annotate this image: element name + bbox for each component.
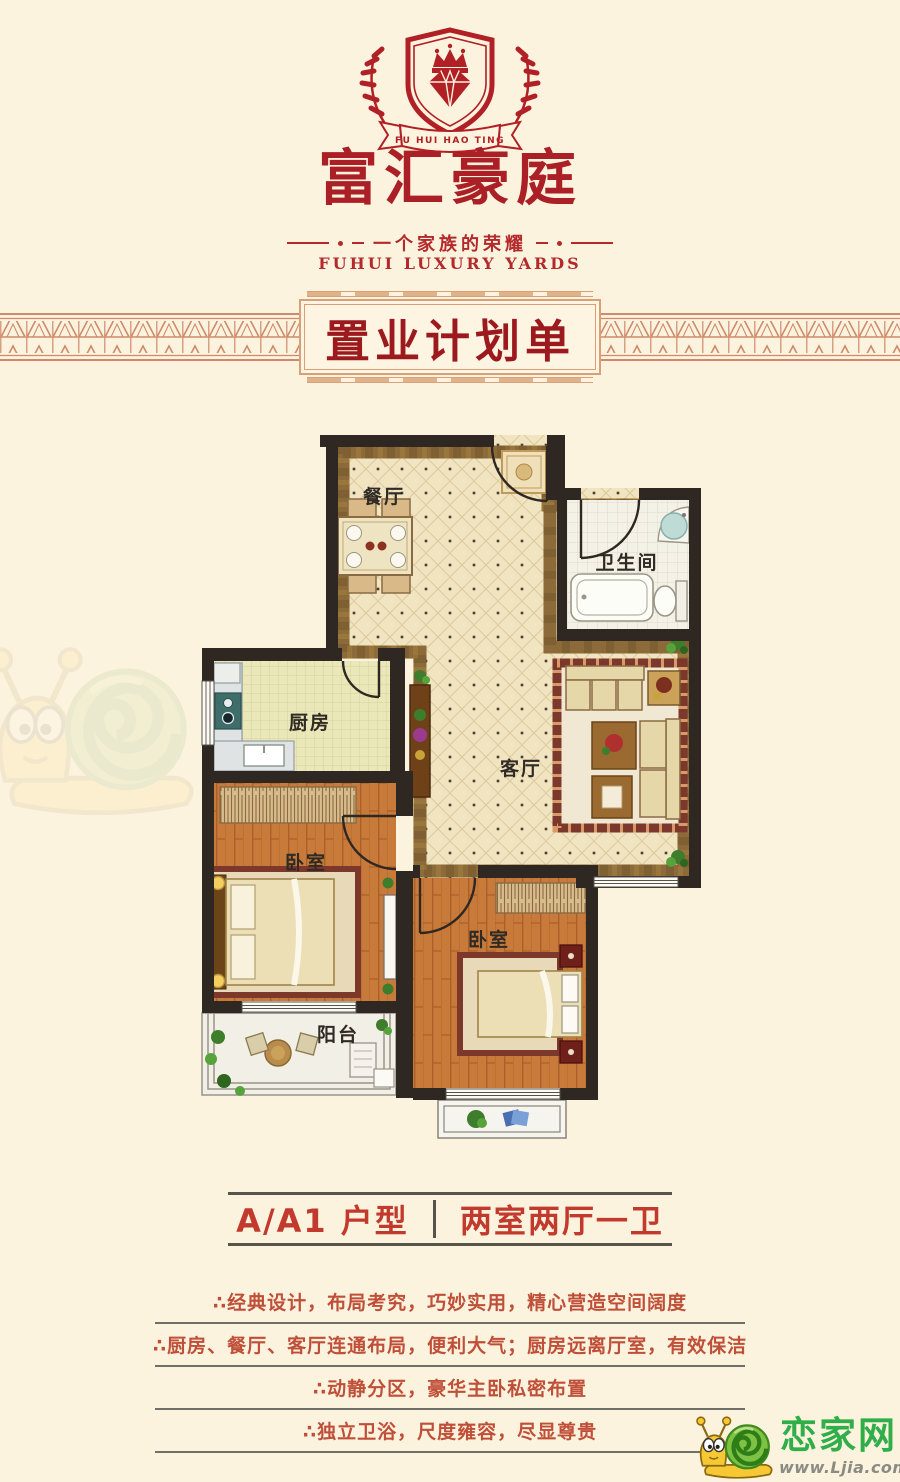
feature-item: ∴经典设计，布局考究，巧妙实用，精心营造空间阔度: [155, 1281, 745, 1322]
bay-window: [438, 1100, 566, 1138]
wardrobe-icon: [220, 787, 356, 823]
bed-second-icon: [478, 971, 582, 1037]
room-label-bedroom-main: 卧室: [285, 851, 327, 874]
tagline-english: FUHUI LUXURY YARDS: [0, 254, 900, 273]
kitchen-window: [202, 681, 214, 745]
living-room-set: [557, 663, 683, 828]
laurel-left-icon: [362, 49, 384, 122]
room-label-kitchen: 厨房: [289, 711, 331, 734]
bathtub-icon: [571, 574, 653, 621]
unit-layout: 两室两厅一卫: [460, 1196, 664, 1242]
site-url: www.Ljia.com: [779, 1458, 900, 1477]
sofa-top: [566, 666, 644, 710]
tagline-dash-right: [571, 242, 613, 244]
kitchen-sink-icon: [244, 745, 284, 766]
unit-info-bar: A/A1 户型 两室两厅一卫: [228, 1192, 672, 1246]
living-window: [594, 877, 678, 887]
unit-info-divider: [433, 1200, 436, 1238]
site-name: 恋家网: [780, 1416, 900, 1456]
bedroom-main-window: [242, 1002, 356, 1012]
room-label-bathroom: 卫生间: [595, 551, 658, 574]
banner-frame: 置业计划单: [299, 299, 601, 375]
tagline-dot-left: [338, 241, 343, 246]
floorplan: 餐厅 卫生间 厨房 客厅 卧室 卧室 阳台: [198, 433, 703, 1145]
room-label-dining: 餐厅: [363, 485, 405, 508]
feature-list: ∴经典设计，布局考究，巧妙实用，精心营造空间阔度 ∴厨房、餐厅、客厅连通布局，便…: [155, 1281, 745, 1453]
banner-inner-frame: 置业计划单: [304, 304, 596, 370]
tagline-text: 一个家族的荣耀: [373, 230, 527, 256]
tagline-dot-right: [557, 241, 562, 246]
bedroom-second-window: [446, 1089, 560, 1099]
property-flyer: { "page": { "background": "#fcf3de" }, "…: [0, 0, 900, 1481]
feature-separator: [155, 1451, 745, 1453]
room-label-living: 客厅: [500, 757, 542, 780]
tagline-shortdash-right: [536, 242, 548, 244]
stove-icon: [215, 693, 241, 729]
crown-icon: [432, 44, 468, 73]
feature-item: ∴动静分区，豪华主卧私密布置: [155, 1367, 745, 1408]
plant-icon: [383, 878, 394, 889]
laurel-right-icon: [516, 49, 538, 122]
side-table-plant: [648, 671, 680, 705]
bed-main-icon: [212, 875, 334, 989]
room-label-bedroom-second: 卧室: [468, 928, 510, 951]
unit-name: A/A1 户型: [236, 1196, 409, 1242]
coffee-table: [592, 722, 636, 769]
dining-table-set: [338, 499, 412, 593]
brand-crest-logo: FU HUI HAO TING: [340, 22, 560, 154]
tagline-shortdash-left: [352, 242, 364, 244]
plant-icon: [383, 984, 394, 995]
wardrobe-icon: [496, 883, 586, 913]
brand-name-title: 富汇豪庭: [0, 146, 900, 212]
watermark-snail-icon: [0, 628, 214, 826]
diamond-icon: [429, 71, 471, 108]
balcony: [202, 1013, 396, 1096]
tagline-dash-left: [287, 242, 329, 244]
tv-stand-icon: [384, 895, 396, 979]
feature-item: ∴独立卫浴，尺度雍容，尽显尊贵: [155, 1410, 745, 1451]
tea-table: [592, 776, 632, 818]
bedroom-second: [413, 878, 586, 1088]
feature-item: ∴厨房、餐厅、客厅连通布局，便利大气；厨房远离厅室，有效保洁: [155, 1324, 745, 1365]
room-label-balcony: 阳台: [317, 1023, 359, 1046]
banner-title: 置业计划单: [325, 305, 575, 370]
tagline-row: 一个家族的荣耀: [0, 230, 900, 256]
site-mascot-snail-icon: [694, 1410, 780, 1482]
